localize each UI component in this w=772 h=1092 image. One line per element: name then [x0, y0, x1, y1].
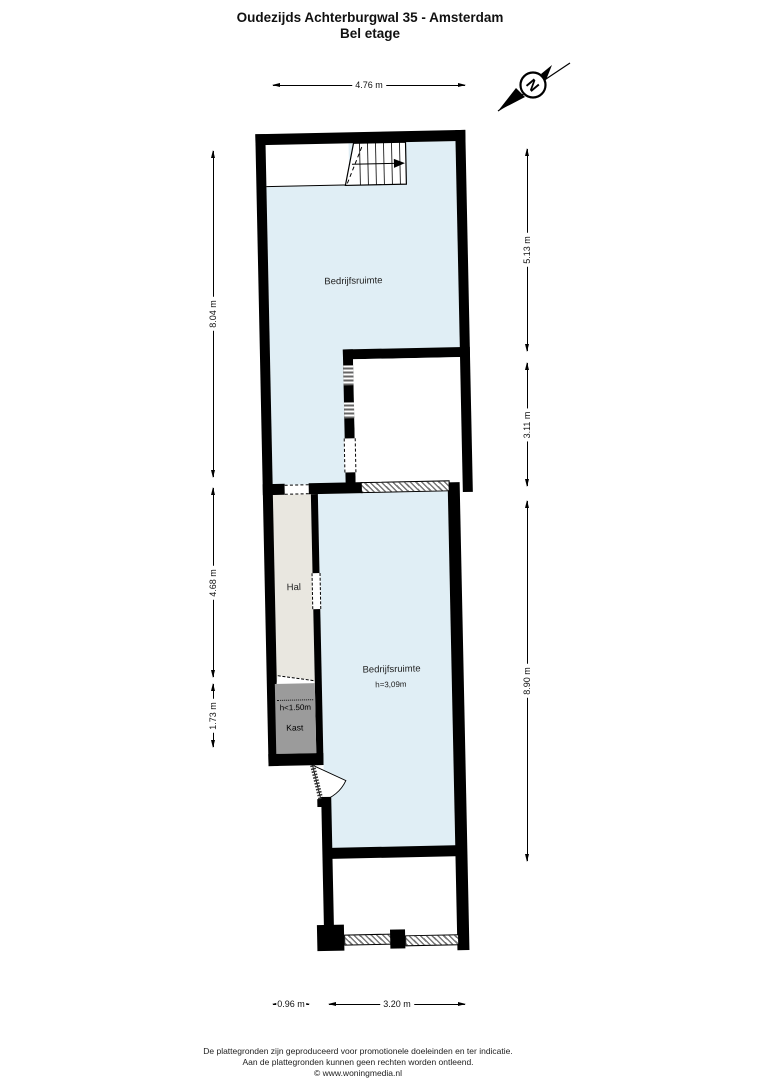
- floorplan-drawing: Bedrijfsruimte Hal Bedrijfsruimte h=3,09…: [255, 130, 482, 966]
- door-opening-upper-hal: [285, 484, 309, 495]
- dimension-left-1-label: 8.04 m: [208, 297, 218, 331]
- dimension-right-1: 5.13 m: [520, 148, 534, 352]
- wall-mid-center: [309, 482, 363, 494]
- floor-subtitle: Bel etage: [0, 26, 740, 42]
- address-title: Oudezijds Achterburgwal 35 - Amsterdam: [0, 10, 740, 26]
- stair-landing-void: [266, 143, 350, 187]
- dimension-right-3: 8.90 m: [520, 500, 534, 862]
- door-opening-void: [344, 438, 357, 472]
- page-title: Oudezijds Achterburgwal 35 - Amsterdam B…: [0, 10, 740, 42]
- dimension-left-2: 4.68 m: [206, 487, 220, 678]
- kast-height-note: h<1.50m: [280, 703, 312, 713]
- dimension-right-1-label: 5.13 m: [522, 233, 532, 267]
- footer-line-1: De plattegronden zijn geproduceerd voor …: [0, 1046, 716, 1057]
- window-mid: [361, 480, 450, 493]
- window-rear-2: [405, 934, 459, 946]
- room-label-bedrijfsruimte-lower: Bedrijfsruimte: [362, 663, 420, 675]
- room-height-note-lower: h=3,09m: [375, 680, 407, 690]
- dimension-right-2: 3.11 m: [520, 362, 534, 487]
- window-void-wall-2: [344, 402, 354, 418]
- dimension-bottom-1-label: 0.96 m: [276, 999, 306, 1009]
- footer-disclaimer: De plattegronden zijn geproduceerd voor …: [0, 1046, 716, 1079]
- window-void-wall-1: [343, 365, 353, 385]
- void-shaft: [353, 357, 463, 484]
- north-compass-icon: N: [495, 60, 573, 114]
- wall-rear-mullion: [390, 929, 405, 948]
- dimension-right-3-label: 8.90 m: [522, 664, 532, 698]
- staircase: [342, 141, 409, 186]
- dimension-left-3: 1.73 m: [206, 683, 220, 748]
- dimension-top-label: 4.76 m: [352, 80, 386, 90]
- dimension-left-3-label: 1.73 m: [208, 699, 218, 733]
- footer-line-2: Aan de plattegronden kunnen geen rechten…: [0, 1057, 716, 1068]
- room-kast: [275, 683, 316, 754]
- dimension-left-1: 8.04 m: [206, 150, 220, 478]
- dimension-left-2-label: 4.68 m: [208, 566, 218, 600]
- door-opening-hal-room: [312, 573, 322, 609]
- dimension-right-2-label: 3.11 m: [522, 408, 532, 441]
- wall-corner-bottom-left: [317, 925, 345, 952]
- dimension-bottom-1: 0.96 m: [272, 997, 310, 1011]
- dimension-bottom-2-label: 3.20 m: [380, 999, 414, 1009]
- dimension-bottom-2: 3.20 m: [328, 997, 466, 1011]
- window-rear-1: [344, 934, 392, 946]
- room-label-kast: Kast: [286, 722, 303, 732]
- dimension-top: 4.76 m: [272, 78, 466, 92]
- room-label-bedrijfsruimte-upper: Bedrijfsruimte: [324, 275, 382, 287]
- floorplan-page: Oudezijds Achterburgwal 35 - Amsterdam B…: [0, 0, 772, 1092]
- rear-annex-area: [333, 856, 458, 937]
- room-label-hal: Hal: [287, 582, 301, 593]
- wall-mid-left: [263, 484, 285, 495]
- footer-copyright: © www.woningmedia.nl: [0, 1068, 716, 1079]
